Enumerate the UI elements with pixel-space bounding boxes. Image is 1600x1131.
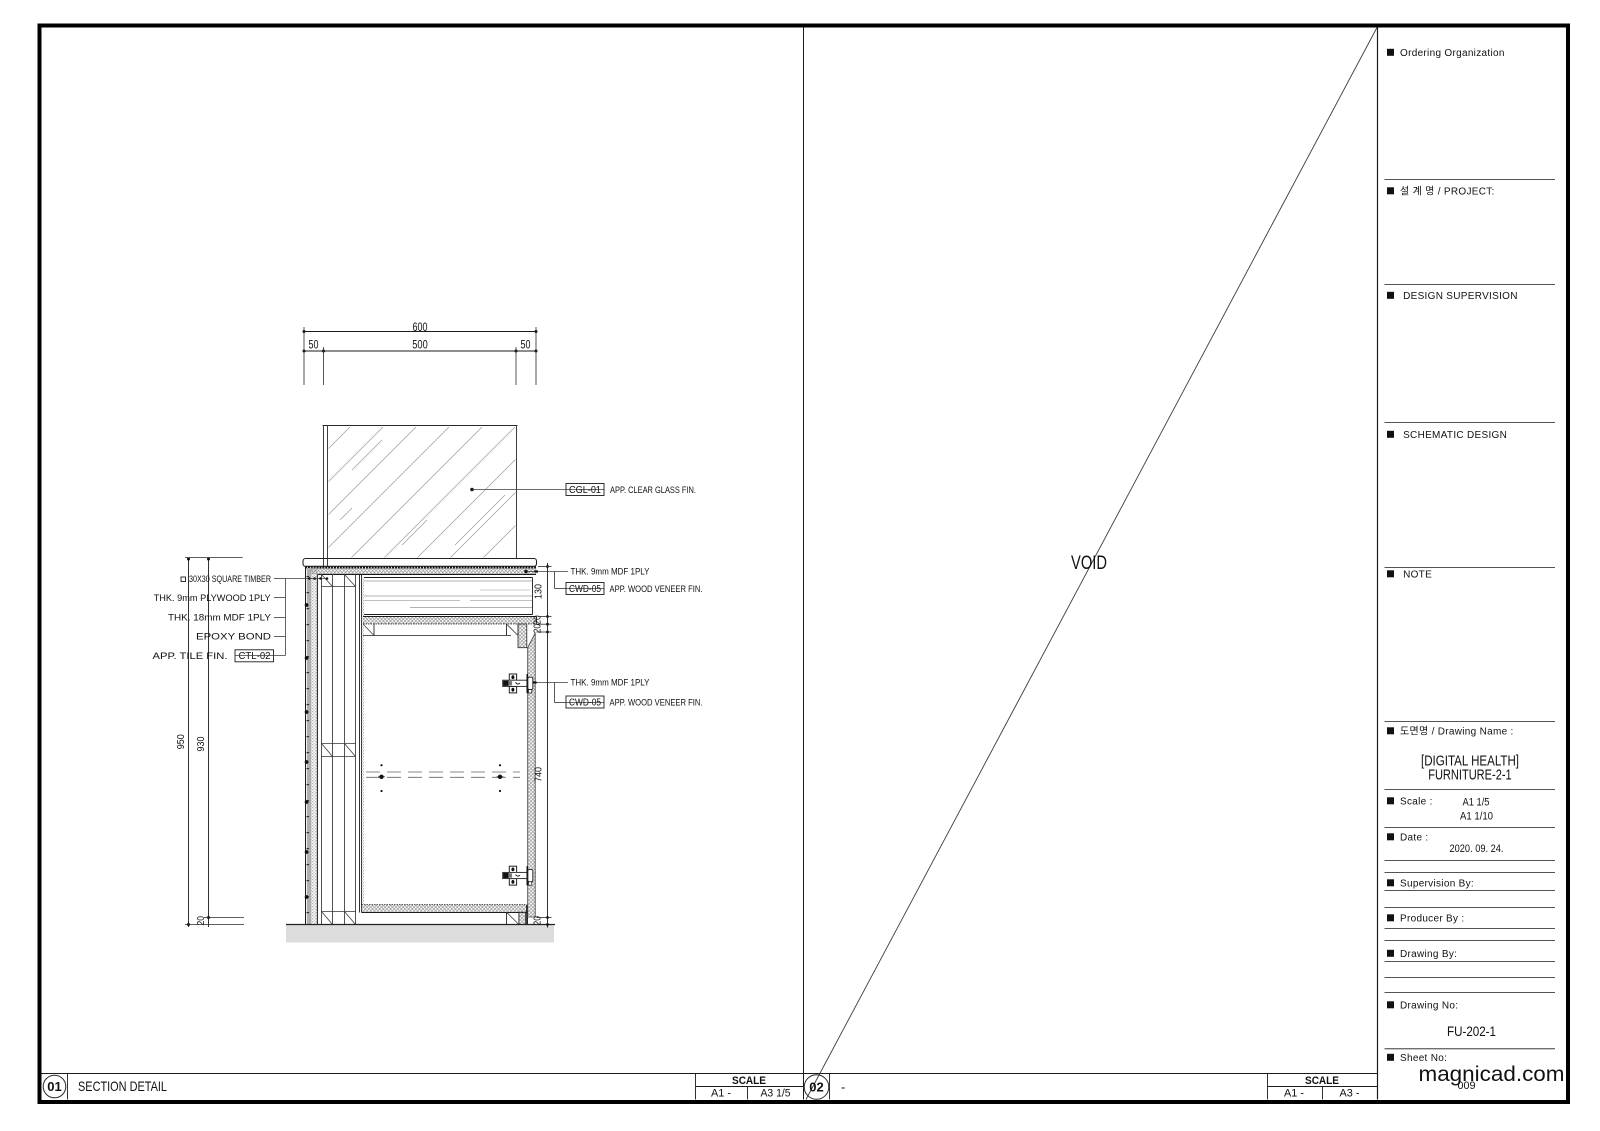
svg-text:DESIGN SUPERVISION: DESIGN SUPERVISION bbox=[1400, 291, 1518, 302]
svg-text:THK. 9mm MDF 1PLY: THK. 9mm MDF 1PLY bbox=[571, 677, 651, 688]
svg-text:Scale :: Scale : bbox=[1400, 797, 1433, 808]
svg-text:A3 1/5: A3 1/5 bbox=[761, 1087, 791, 1099]
svg-text:NOTE: NOTE bbox=[1400, 570, 1432, 581]
svg-text:Date :: Date : bbox=[1400, 833, 1428, 844]
svg-text:FU-202-1: FU-202-1 bbox=[1447, 1023, 1496, 1039]
svg-text:Producer By :: Producer By : bbox=[1400, 914, 1464, 925]
svg-text:A1 -: A1 - bbox=[1284, 1087, 1304, 1099]
svg-text:CWD-05: CWD-05 bbox=[569, 584, 601, 595]
svg-text:50: 50 bbox=[309, 340, 319, 352]
svg-text:600: 600 bbox=[413, 322, 428, 334]
svg-text:A3 -: A3 - bbox=[1340, 1087, 1360, 1099]
svg-text:950: 950 bbox=[175, 734, 187, 749]
svg-text:A1 1/10: A1 1/10 bbox=[1460, 811, 1493, 823]
svg-text:VOID: VOID bbox=[1071, 553, 1107, 574]
svg-text:2020. 09. 24.: 2020. 09. 24. bbox=[1450, 843, 1504, 855]
svg-text:SECTION DETAIL: SECTION DETAIL bbox=[78, 1078, 167, 1094]
svg-text:740: 740 bbox=[533, 767, 545, 782]
svg-text:02: 02 bbox=[809, 1080, 823, 1095]
svg-text:30X30 SQUARE TIMBER: 30X30 SQUARE TIMBER bbox=[189, 574, 271, 585]
svg-text:Supervision By:: Supervision By: bbox=[1400, 879, 1474, 890]
svg-text:FURNITURE-2-1: FURNITURE-2-1 bbox=[1428, 768, 1512, 784]
svg-text:CTL-02: CTL-02 bbox=[239, 651, 271, 662]
svg-text:Drawing By:: Drawing By: bbox=[1400, 949, 1457, 960]
svg-text:APP. WOOD VENEER FIN.: APP. WOOD VENEER FIN. bbox=[610, 698, 703, 709]
svg-text:SCALE: SCALE bbox=[1305, 1075, 1339, 1087]
svg-text:THK. 9mm MDF 1PLY: THK. 9mm MDF 1PLY bbox=[571, 566, 651, 577]
svg-text:설 계 명 / PROJECT:: 설 계 명 / PROJECT: bbox=[1400, 186, 1495, 198]
svg-text:50: 50 bbox=[521, 340, 531, 352]
svg-text:Drawing No:: Drawing No: bbox=[1400, 1001, 1458, 1012]
svg-text:130: 130 bbox=[533, 584, 545, 599]
svg-text:EPOXY BOND: EPOXY BOND bbox=[196, 632, 271, 643]
svg-text:930: 930 bbox=[195, 736, 207, 751]
svg-text:magnicad.com: magnicad.com bbox=[1419, 1062, 1565, 1086]
svg-text:CWD-05: CWD-05 bbox=[569, 698, 601, 709]
svg-text:APP. TILE FIN.: APP. TILE FIN. bbox=[153, 651, 228, 662]
svg-text:SCHEMATIC DESIGN: SCHEMATIC DESIGN bbox=[1400, 430, 1507, 441]
svg-text:Ordering Organization: Ordering Organization bbox=[1400, 48, 1505, 59]
svg-text:THK. 9mm PLYWOOD 1PLY: THK. 9mm PLYWOOD 1PLY bbox=[154, 593, 272, 604]
svg-text:APP. WOOD VENEER FIN.: APP. WOOD VENEER FIN. bbox=[610, 584, 703, 595]
svg-text:A1 1/5: A1 1/5 bbox=[1463, 797, 1490, 809]
svg-text:500: 500 bbox=[412, 340, 428, 352]
svg-text:THK. 18mm MDF 1PLY: THK. 18mm MDF 1PLY bbox=[168, 612, 272, 623]
svg-text:APP. CLEAR GLASS FIN.: APP. CLEAR GLASS FIN. bbox=[610, 485, 696, 496]
svg-text:A1 -: A1 - bbox=[711, 1087, 731, 1099]
svg-text:01: 01 bbox=[47, 1079, 61, 1094]
svg-text:도면명 / Drawing Name :: 도면명 / Drawing Name : bbox=[1400, 726, 1514, 738]
svg-text:CGL-01: CGL-01 bbox=[569, 485, 601, 496]
svg-text:-: - bbox=[841, 1079, 845, 1094]
svg-text:SCALE: SCALE bbox=[732, 1075, 766, 1087]
